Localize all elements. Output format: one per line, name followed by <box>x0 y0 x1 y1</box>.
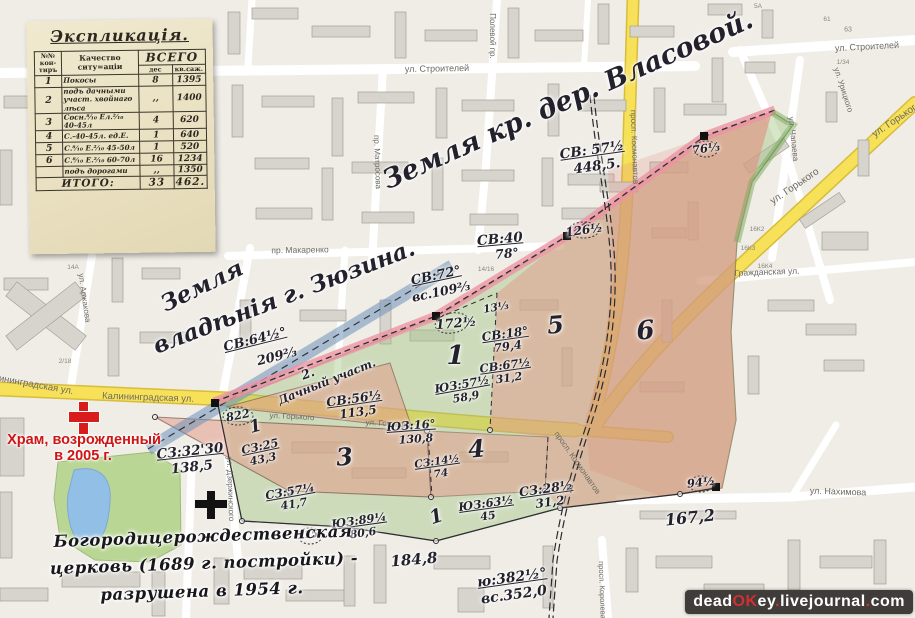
explication-table-document: Экспликація. №№ кон-тиръ Качество ситу=а… <box>26 19 215 255</box>
watermark-part: livejournal <box>780 593 866 610</box>
explication-row: 2подъ дачными участ. хвойнаго лѣса,,1400 <box>35 85 206 113</box>
explication-title: Экспликація. <box>33 25 205 46</box>
total-des: 33 <box>140 176 174 189</box>
historic-map-overlay-image: ул. Строителейул. СтроителейПолевой пр.п… <box>0 0 915 618</box>
total-label: ИТОГО: <box>36 177 140 191</box>
watermark-link[interactable]: deadOKey.livejournal.com <box>685 590 913 614</box>
total-sazh: 462. <box>174 176 208 189</box>
watermark-part: dead <box>693 593 732 610</box>
pond <box>68 469 111 544</box>
col-header-total: ВСЕГО <box>138 49 205 65</box>
revived-church-cross-icon <box>68 401 98 433</box>
watermark-part: ey <box>758 593 776 610</box>
destroyed-church-cross-icon <box>195 491 227 519</box>
watermark-part: OK <box>733 593 758 610</box>
explication-table: №№ кон-тиръ Качество ситу=аціи ВСЕГО дес… <box>34 49 208 192</box>
watermark-part: com <box>871 593 905 610</box>
col-header-contour: №№ кон-тиръ <box>34 51 61 75</box>
plot-4-area <box>427 431 548 497</box>
col-header-des: дес <box>139 65 173 74</box>
col-header-quality: Качество ситу=аціи <box>61 50 138 75</box>
col-header-sazh: кв.саж. <box>172 64 206 73</box>
